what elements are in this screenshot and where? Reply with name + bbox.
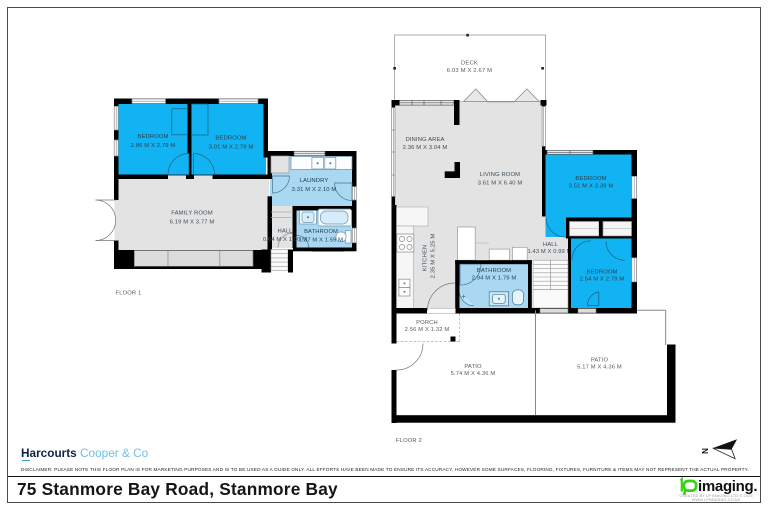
svg-text:6.19 M X 3.77 M: 6.19 M X 3.77 M bbox=[170, 220, 215, 226]
svg-text:LIVING ROOM: LIVING ROOM bbox=[480, 172, 520, 178]
svg-text:2.36 M X 3.04 M: 2.36 M X 3.04 M bbox=[403, 145, 448, 151]
svg-text:BATHROOM: BATHROOM bbox=[304, 229, 338, 235]
svg-text:DECK: DECK bbox=[461, 61, 478, 67]
svg-text:PORCH: PORCH bbox=[416, 320, 438, 326]
svg-text:3.31 M X 2.10 M: 3.31 M X 2.10 M bbox=[292, 187, 337, 193]
svg-text:2.86 M X 2.79 M: 2.86 M X 2.79 M bbox=[131, 143, 176, 149]
svg-text:KITCHEN: KITCHEN bbox=[423, 245, 429, 272]
svg-text:PATIO: PATIO bbox=[464, 364, 482, 370]
svg-text:2.94 M X 1.79 M: 2.94 M X 1.79 M bbox=[472, 275, 517, 281]
svg-text:FLOOR 2: FLOOR 2 bbox=[396, 438, 422, 444]
svg-text:PATIO: PATIO bbox=[591, 357, 609, 363]
svg-text:BEDROOM: BEDROOM bbox=[137, 134, 168, 140]
svg-text:N: N bbox=[701, 448, 710, 454]
svg-text:3.61 M X 6.40 M: 3.61 M X 6.40 M bbox=[478, 180, 523, 186]
svg-text:2.54 M X 2.79 M: 2.54 M X 2.79 M bbox=[580, 277, 625, 283]
svg-text:3.01 M X 2.79 M: 3.01 M X 2.79 M bbox=[209, 145, 254, 151]
svg-text:BEDROOM: BEDROOM bbox=[215, 136, 246, 142]
svg-text:HALL: HALL bbox=[543, 242, 559, 248]
svg-text:FLOOR 1: FLOOR 1 bbox=[116, 291, 142, 297]
svg-text:5.17 M X 4.36 M: 5.17 M X 4.36 M bbox=[577, 364, 622, 370]
svg-text:2.35 M X 5.25 M: 2.35 M X 5.25 M bbox=[431, 234, 437, 279]
svg-text:5.74 M X 4.36 M: 5.74 M X 4.36 M bbox=[451, 371, 496, 377]
svg-text:LAUNDRY: LAUNDRY bbox=[300, 178, 329, 184]
svg-text:3.51 M X 3.39 M: 3.51 M X 3.39 M bbox=[569, 183, 614, 189]
svg-text:FAMILY ROOM: FAMILY ROOM bbox=[171, 211, 212, 217]
svg-text:2.56 M X 1.32 M: 2.56 M X 1.32 M bbox=[405, 327, 450, 333]
svg-text:6.03 M X 2.67 M: 6.03 M X 2.67 M bbox=[447, 68, 492, 74]
svg-text:1.43 M X 0.99 M: 1.43 M X 0.99 M bbox=[527, 249, 571, 255]
svg-text:1.37 M X 1.59 M: 1.37 M X 1.59 M bbox=[299, 238, 343, 244]
svg-text:BEDROOM: BEDROOM bbox=[575, 176, 606, 182]
svg-text:HALL: HALL bbox=[278, 229, 294, 235]
svg-text:BEDROOM: BEDROOM bbox=[586, 269, 617, 275]
svg-text:BATHROOM: BATHROOM bbox=[477, 268, 511, 274]
svg-text:DINING AREA: DINING AREA bbox=[405, 137, 444, 143]
